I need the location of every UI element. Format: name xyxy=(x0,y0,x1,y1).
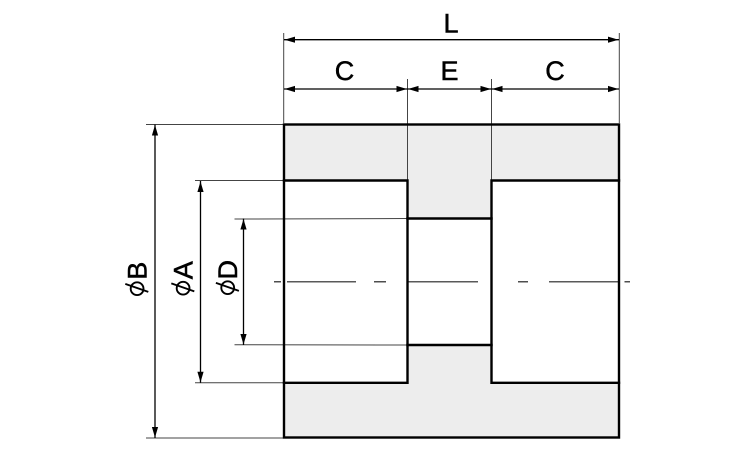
svg-text:C: C xyxy=(335,56,355,86)
svg-text:D: D xyxy=(213,260,243,280)
svg-text:A: A xyxy=(169,261,199,279)
svg-text:C: C xyxy=(545,56,565,86)
svg-text:E: E xyxy=(440,56,458,86)
svg-text:L: L xyxy=(443,9,458,39)
svg-text:B: B xyxy=(123,262,153,280)
